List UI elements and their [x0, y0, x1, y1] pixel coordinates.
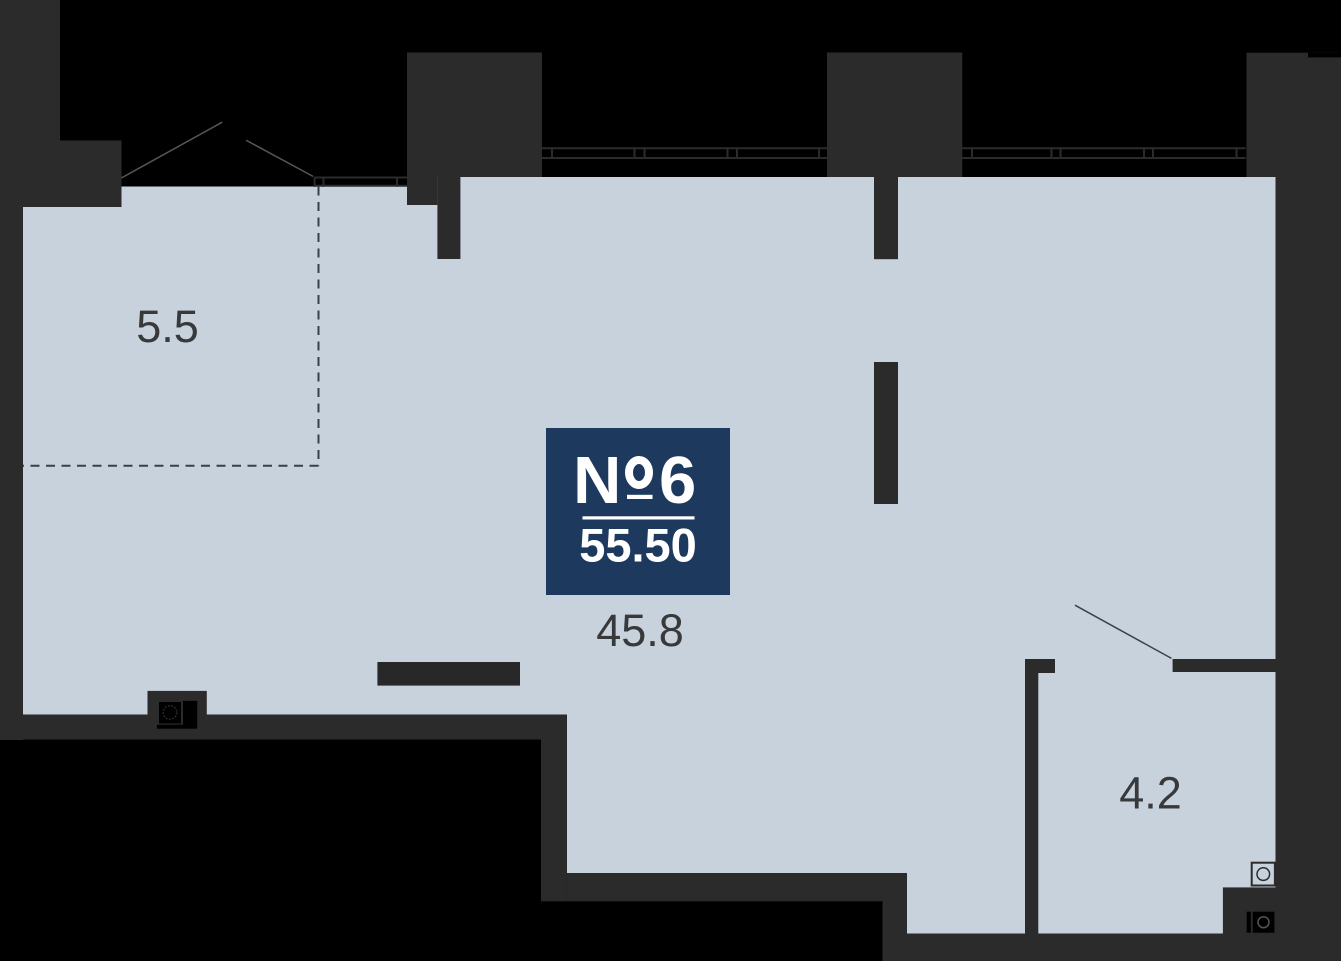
- svg-text:6: 6: [659, 443, 696, 518]
- svg-text:55.50: 55.50: [579, 519, 697, 572]
- svg-text:4.2: 4.2: [1119, 768, 1182, 819]
- svg-text:N: N: [573, 443, 621, 518]
- svg-text:45.8: 45.8: [596, 605, 684, 656]
- svg-text:5.5: 5.5: [136, 301, 199, 352]
